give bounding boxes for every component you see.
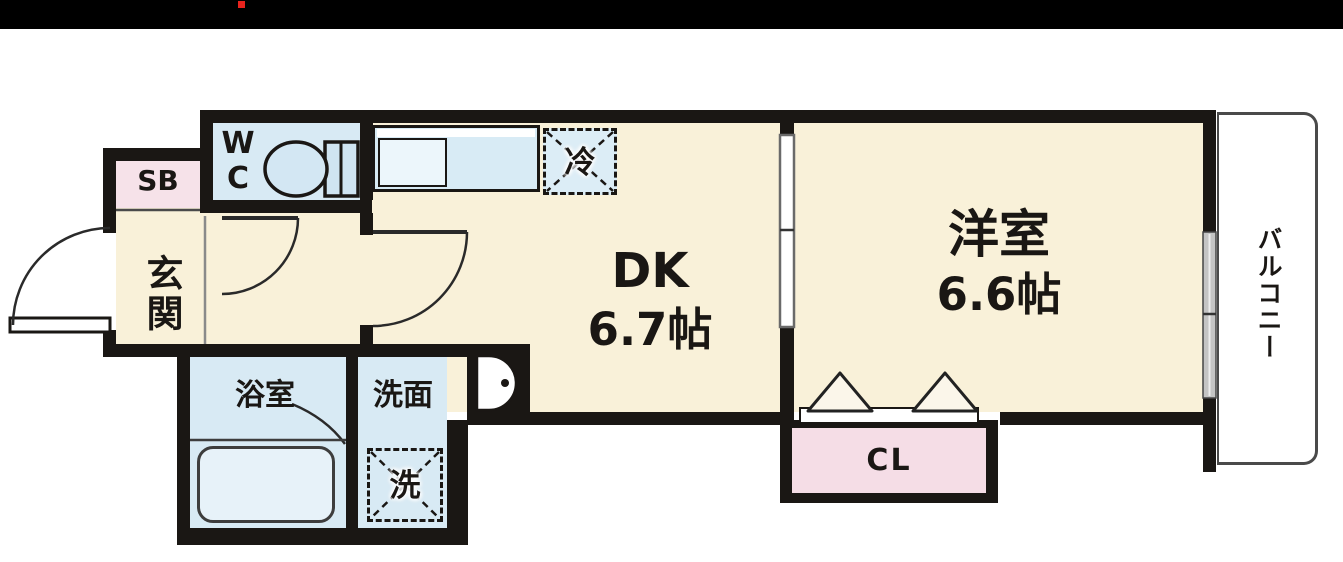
balcony-label: バルコニー [1248,211,1282,376]
washbasin-icon [477,356,516,410]
entrance-door-arc [13,228,110,325]
toilet-label: W C [214,126,262,196]
refrigerator-label: 冷 [543,146,617,180]
washroom-label: 洗面 [358,379,448,412]
dk-size: 6.7帖 [545,299,755,361]
entrance-door-leaf [10,318,110,332]
dk-label: DK 6.7帖 [545,243,755,361]
top-black-bar [0,0,1343,29]
western-room-label: 洋室 6.6帖 [849,206,1149,324]
balcony-window [1203,232,1216,398]
entrance-label: 玄関 [139,241,181,346]
toilet-label-line1: W [214,126,262,161]
wc-door-arc [222,218,298,294]
shoe-box-label: SB [116,166,200,197]
closet-folding-door [800,373,978,423]
washer-label: 洗 [367,469,443,503]
floor-plan: SB W C 玄関 DK 6.7帖 洋室 6.6帖 バルコニー 浴室 洗面 洗 … [0,0,1343,562]
dk-door-leaf [373,230,467,234]
toilet-label-line2: C [214,161,262,196]
sliding-door [780,135,794,327]
western-room-size: 6.6帖 [849,266,1149,324]
dk-door-arc [373,232,467,326]
red-dot [238,1,245,8]
western-room-name: 洋室 [849,206,1149,266]
wc-door-leaf [222,216,298,220]
toilet-icon [265,142,358,196]
bathroom-label: 浴室 [200,379,330,412]
closet-label: CL [798,444,980,477]
dk-name: DK [545,243,755,299]
